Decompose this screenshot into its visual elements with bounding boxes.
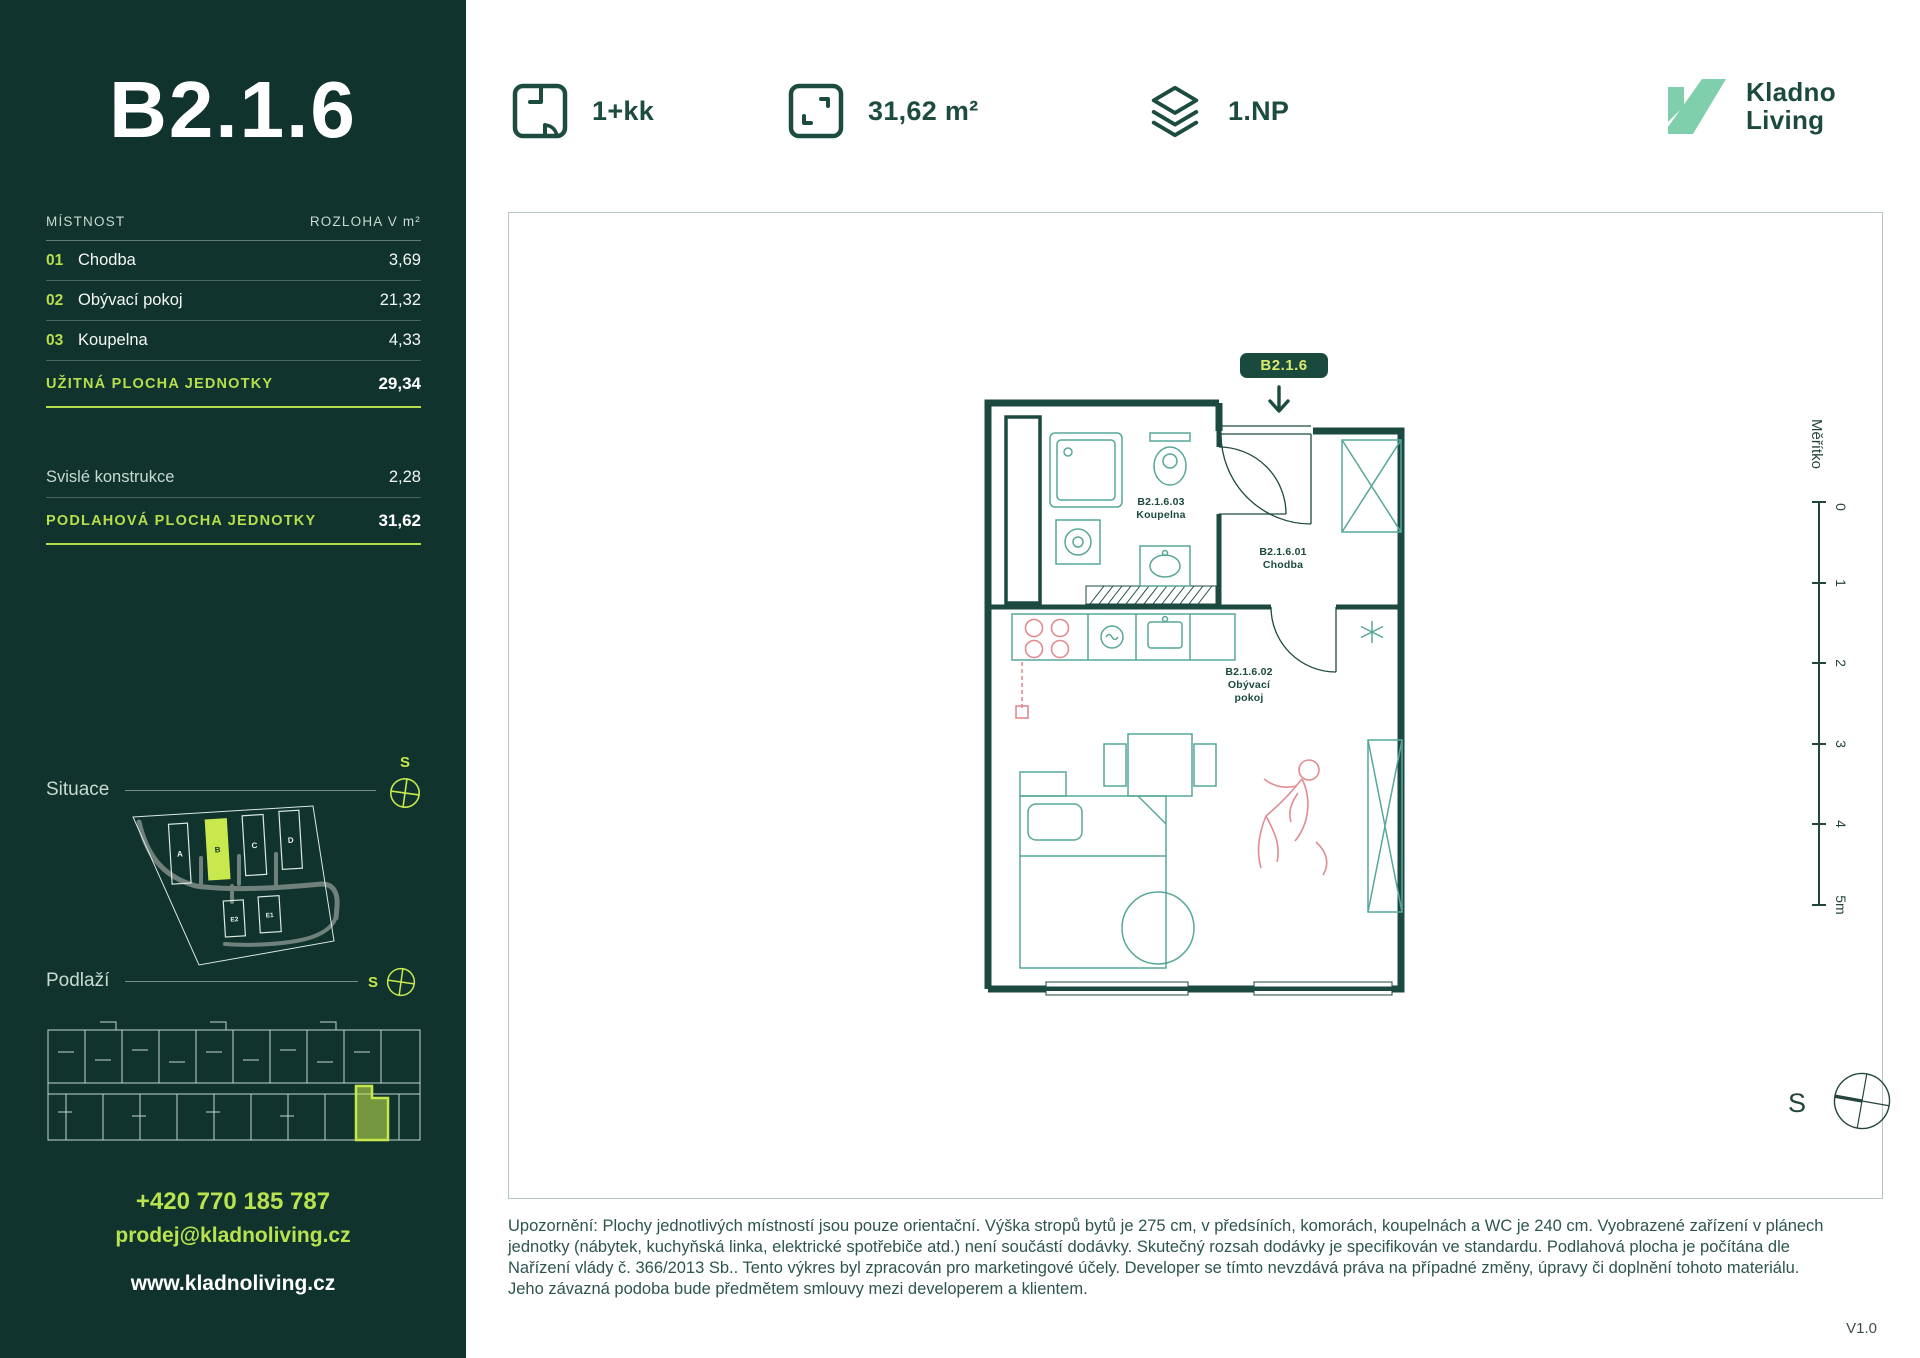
logo-line1: Kladno xyxy=(1746,78,1836,106)
disclaimer-line: Nařízení vlády č. 366/2013 Sb.. Tento vý… xyxy=(508,1258,1868,1279)
room-table: MÍSTNOST ROZLOHA V m² 01 Chodba 3,69 02 … xyxy=(46,214,421,545)
disclaimer-line: jednotky (nábytek, kuchyňská linka, elek… xyxy=(508,1237,1868,1258)
podlazi-compass-label: S xyxy=(368,974,378,991)
vertical-structures-value: 2,28 xyxy=(389,468,421,487)
floor-plan-drawing xyxy=(940,340,1440,1020)
round-table xyxy=(1122,892,1194,964)
logo-line2: Living xyxy=(1746,106,1836,134)
situace-label: Situace xyxy=(46,779,109,801)
page: B2.1.6 MÍSTNOST ROZLOHA V m² 01 Chodba 3… xyxy=(0,0,1920,1358)
col-area-header: ROZLOHA V m² xyxy=(310,214,421,229)
room-label-obyvaci-pokoj: B2.1.6.02 Obývací pokoj xyxy=(1206,666,1292,705)
entrance-arrow-icon xyxy=(1270,387,1288,411)
threshold-hatch xyxy=(1086,586,1216,604)
scale-ruler: Měřítko 0 1 2 3 4 5m xyxy=(1795,395,1895,945)
table-row: 01 Chodba 3,69 xyxy=(46,241,421,281)
room-name: Chodba xyxy=(1240,559,1326,572)
building-e2-label: E2 xyxy=(230,916,239,923)
version-label: V1.0 xyxy=(1750,1320,1877,1337)
room-code: B2.1.6.01 xyxy=(1240,546,1326,559)
contact-website[interactable]: www.kladnoliving.cz xyxy=(0,1272,466,1296)
area-label: 31,62 m² xyxy=(868,96,978,127)
layers-icon xyxy=(1146,81,1204,141)
kladno-living-logo[interactable]: Kladno Living xyxy=(1668,78,1836,134)
ruler-tick-label: 4 xyxy=(1833,820,1849,828)
contact-phone[interactable]: +420 770 185 787 xyxy=(0,1188,466,1216)
building-a-label: A xyxy=(177,849,184,858)
usable-area-value: 29,34 xyxy=(378,374,421,394)
podlazi-section-head: Podlaží xyxy=(46,970,358,992)
area-group: 31,62 m² xyxy=(788,80,978,142)
vertical-structures-row: Svislé konstrukce 2,28 xyxy=(46,458,421,498)
row-number: 01 xyxy=(46,252,78,270)
floor-area-row: PODLAHOVÁ PLOCHA JEDNOTKY 31,62 xyxy=(46,498,421,545)
situace-compass-label: S xyxy=(388,754,422,771)
podlazi-label: Podlaží xyxy=(46,970,109,992)
vertical-structures-label: Svislé konstrukce xyxy=(46,468,174,487)
chair xyxy=(1194,744,1216,786)
stove-burner xyxy=(1026,620,1043,637)
room-code: B2.1.6.02 xyxy=(1206,666,1292,679)
unit-badge: B2.1.6 xyxy=(1240,353,1328,378)
table-row: 02 Obývací pokoj 21,32 xyxy=(46,281,421,321)
room-name: Obývací pokoj xyxy=(78,291,183,310)
stove-burner xyxy=(1026,641,1043,658)
stove-and-person xyxy=(1016,620,1327,876)
kitchen-sink xyxy=(1148,622,1182,648)
building-d-label: D xyxy=(288,836,295,845)
table-row: 03 Koupelna 4,33 xyxy=(46,321,421,361)
room-name: pokoj xyxy=(1206,692,1292,705)
ruler-tick-label: 0 xyxy=(1833,503,1849,511)
building-b-label: B xyxy=(214,845,221,854)
stove-burner xyxy=(1052,641,1069,658)
room-name: Koupelna xyxy=(1118,509,1204,522)
person-figure xyxy=(1259,760,1327,875)
contact-email[interactable]: prodej@kladnoliving.cz xyxy=(0,1224,466,1248)
layout-type-label: 1+kk xyxy=(592,96,654,127)
logo-text: Kladno Living xyxy=(1746,78,1836,134)
situace-map: A B C D E2 E1 xyxy=(118,798,352,974)
floor-group: 1.NP xyxy=(1146,80,1289,142)
shower xyxy=(1050,433,1122,507)
podlazi-floor-strip xyxy=(40,1005,430,1150)
divider-line xyxy=(125,981,358,982)
ruler-tick-label: 5m xyxy=(1833,895,1849,914)
divider-line xyxy=(125,790,376,791)
room-label-koupelna: B2.1.6.03 Koupelna xyxy=(1118,496,1204,522)
plan-compass-label: S xyxy=(1788,1088,1806,1118)
situace-roads xyxy=(139,822,337,945)
room-code: B2.1.6.03 xyxy=(1118,496,1204,509)
room-name: Koupelna xyxy=(78,331,148,350)
ruler-title: Měřítko xyxy=(1808,419,1825,469)
room-area: 4,33 xyxy=(389,331,421,350)
logo-mark-icon xyxy=(1668,78,1726,134)
layout-type-group: 1+kk xyxy=(512,80,654,142)
row-number: 02 xyxy=(46,292,78,310)
shaft-column xyxy=(1006,417,1040,603)
chair xyxy=(1104,744,1126,786)
ruler-tick-label: 3 xyxy=(1833,740,1849,748)
col-room-header: MÍSTNOST xyxy=(46,214,125,229)
disclaimer-line: Upozornění: Plochy jednotlivých místnost… xyxy=(508,1216,1868,1237)
disclaimer-text: Upozornění: Plochy jednotlivých místnost… xyxy=(508,1216,1868,1300)
floorplan-icon xyxy=(512,83,568,139)
floor-label: 1.NP xyxy=(1228,96,1289,127)
room-name: Chodba xyxy=(78,251,136,270)
room-area: 3,69 xyxy=(389,251,421,270)
dining-table xyxy=(1128,734,1192,796)
podlazi-compass-icon xyxy=(385,966,417,998)
bathroom-sink xyxy=(1140,546,1190,586)
unit-title: B2.1.6 xyxy=(0,70,466,150)
building-e1-label: E1 xyxy=(266,912,275,919)
floor-area-label: PODLAHOVÁ PLOCHA JEDNOTKY xyxy=(46,513,316,529)
situace-compass-icon xyxy=(388,776,422,810)
room-name: Obývací xyxy=(1206,679,1292,692)
room-label-chodba: B2.1.6.01 Chodba xyxy=(1240,546,1326,572)
plan-compass-icon: S xyxy=(1770,1068,1900,1134)
room-table-header: MÍSTNOST ROZLOHA V m² xyxy=(46,214,421,241)
snowflake-icon xyxy=(1361,621,1383,643)
disclaimer-line: Jeho závazná podoba bude předmětem smlou… xyxy=(508,1279,1868,1300)
usable-area-row: UŽITNÁ PLOCHA JEDNOTKY 29,34 xyxy=(46,361,421,408)
ruler-tick-label: 2 xyxy=(1833,659,1849,667)
washing-machine xyxy=(1056,520,1100,564)
row-number: 03 xyxy=(46,332,78,350)
usable-area-label: UŽITNÁ PLOCHA JEDNOTKY xyxy=(46,376,273,392)
floor-area-value: 31,62 xyxy=(378,511,421,531)
toilet xyxy=(1150,433,1190,441)
bed xyxy=(1020,796,1166,968)
room-area: 21,32 xyxy=(380,291,421,310)
stove-burner xyxy=(1052,620,1069,637)
building-c-label: C xyxy=(251,841,258,850)
ruler-tick-label: 1 xyxy=(1833,579,1849,587)
area-icon xyxy=(788,83,844,139)
sidebar: B2.1.6 MÍSTNOST ROZLOHA V m² 01 Chodba 3… xyxy=(0,0,466,1358)
nightstand xyxy=(1020,772,1066,796)
podlazi-compass: S xyxy=(368,966,417,998)
